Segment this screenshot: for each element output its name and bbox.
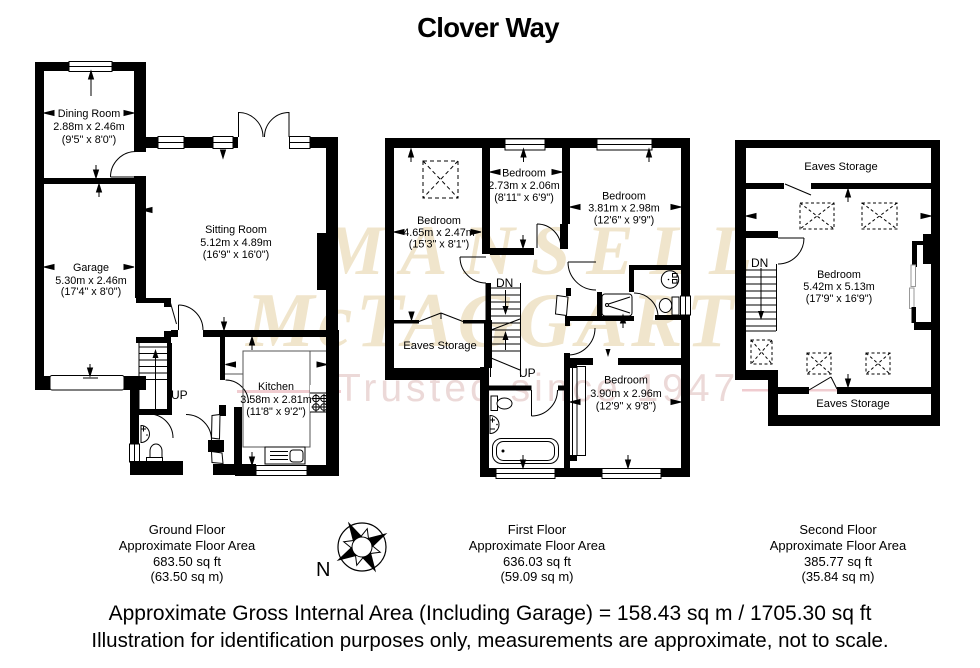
svg-text:3.58m x 2.81m: 3.58m x 2.81m	[240, 394, 311, 406]
svg-text:(35.84 sq m): (35.84 sq m)	[802, 569, 875, 584]
svg-text:UP: UP	[171, 388, 188, 402]
svg-text:DN: DN	[496, 276, 513, 290]
svg-text:(16'9" x 16'0"): (16'9" x 16'0")	[203, 249, 269, 261]
svg-text:Eaves Storage: Eaves Storage	[816, 398, 889, 410]
svg-text:Bedroom: Bedroom	[817, 269, 861, 281]
svg-text:Illustration for identificatio: Illustration for identification purposes…	[91, 629, 888, 652]
svg-text:Approximate Floor Area: Approximate Floor Area	[770, 538, 907, 553]
svg-text:Dining Room: Dining Room	[58, 108, 120, 120]
svg-text:(63.50 sq m): (63.50 sq m)	[151, 569, 224, 584]
svg-text:(12'6" x 9'9"): (12'6" x 9'9")	[594, 215, 654, 227]
svg-text:(17'9" x 16'9"): (17'9" x 16'9")	[806, 293, 872, 305]
svg-text:Kitchen: Kitchen	[258, 381, 294, 393]
svg-text:2.73m x 2.06m: 2.73m x 2.06m	[488, 180, 559, 192]
svg-text:Eaves Storage: Eaves Storage	[403, 340, 476, 352]
svg-text:2.88m x 2.46m: 2.88m x 2.46m	[53, 121, 124, 133]
svg-text:Bedroom: Bedroom	[602, 191, 646, 203]
svg-text:Ground Floor: Ground Floor	[149, 522, 226, 537]
svg-text:N: N	[316, 559, 330, 581]
svg-text:(8'11" x 6'9"): (8'11" x 6'9")	[494, 192, 554, 204]
svg-text:Approximate Floor Area: Approximate Floor Area	[119, 538, 256, 553]
svg-text:(12'9" x 9'8"): (12'9" x 9'8")	[596, 401, 656, 413]
svg-text:Clover Way: Clover Way	[417, 12, 560, 43]
svg-text:Approximate Gross Internal Are: Approximate Gross Internal Area (Includi…	[109, 602, 872, 625]
svg-text:5.42m x 5.13m: 5.42m x 5.13m	[803, 281, 874, 293]
svg-text:683.50 sq ft: 683.50 sq ft	[153, 554, 221, 569]
svg-text:First Floor: First Floor	[508, 522, 567, 537]
svg-text:Second Floor: Second Floor	[799, 522, 877, 537]
svg-text:5.12m x 4.89m: 5.12m x 4.89m	[200, 237, 271, 249]
svg-text:Garage: Garage	[73, 262, 109, 274]
svg-text:UP: UP	[519, 366, 536, 380]
svg-text:(9'5" x 8'0"): (9'5" x 8'0")	[62, 134, 116, 146]
svg-text:(17'4" x 8'0"): (17'4" x 8'0")	[61, 286, 121, 298]
svg-text:636.03 sq ft: 636.03 sq ft	[503, 554, 571, 569]
svg-text:(15'3" x 8'1"): (15'3" x 8'1")	[409, 239, 469, 251]
svg-text:Sitting Room: Sitting Room	[205, 224, 267, 236]
svg-text:Approximate Floor Area: Approximate Floor Area	[469, 538, 606, 553]
svg-text:3.90m x 2.96m: 3.90m x 2.96m	[590, 388, 661, 400]
svg-text:Eaves Storage: Eaves Storage	[804, 161, 877, 173]
svg-text:(11'8" x 9'2"): (11'8" x 9'2")	[246, 406, 306, 418]
svg-text:Bedroom: Bedroom	[604, 375, 648, 387]
svg-text:DN: DN	[751, 256, 768, 270]
svg-text:385.77 sq ft: 385.77 sq ft	[804, 554, 872, 569]
svg-text:(59.09 sq m): (59.09 sq m)	[501, 569, 574, 584]
svg-text:3.81m x 2.98m: 3.81m x 2.98m	[588, 203, 659, 215]
svg-text:4.65m x 2.47m: 4.65m x 2.47m	[403, 227, 474, 239]
svg-text:Bedroom: Bedroom	[417, 215, 461, 227]
svg-text:Bedroom: Bedroom	[502, 168, 546, 180]
